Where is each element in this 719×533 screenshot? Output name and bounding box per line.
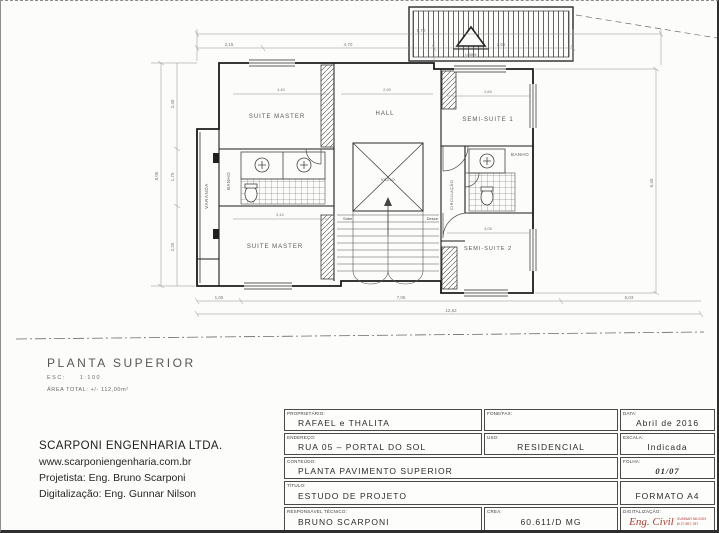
svg-text:2,40: 2,40 xyxy=(170,99,175,108)
titleblock-phone-cell: FONE/FAX: xyxy=(484,409,618,431)
dimension-lines xyxy=(151,29,703,317)
svg-text:2,60: 2,60 xyxy=(484,89,493,94)
void-label: VAZIO xyxy=(381,177,395,182)
crea-value: 60.611/D MG xyxy=(485,508,617,530)
roof-slope-label: i=30% xyxy=(465,52,477,57)
scale-value: Indicada xyxy=(621,434,714,454)
content-value: PLANTA PAVIMENTO SUPERIOR xyxy=(285,458,617,478)
svg-text:1,05: 1,05 xyxy=(215,295,224,300)
owner-value: RAFAEL e THALITA xyxy=(285,410,481,430)
room-label-suite-master-top: SUITE MASTER xyxy=(249,114,305,120)
room-label-semi-suite-1: SEMI-SUITE 1 xyxy=(462,117,513,123)
company-digitization: Digitalização: Eng. Gunnar Nilson xyxy=(39,487,223,503)
staircase: Sobe Desce VAZIO xyxy=(337,143,439,284)
svg-text:3,05: 3,05 xyxy=(484,226,493,231)
svg-text:12,62: 12,62 xyxy=(445,308,457,313)
plan-scale-value: 1:100 xyxy=(80,375,101,381)
titleblock-digitization-cell: DIGITALIZAÇÃO: Eng. Civil GUNNAR NILSON … xyxy=(620,507,715,531)
plan-title: PLANTA SUPERIOR xyxy=(47,356,196,370)
wall-columns xyxy=(213,153,219,239)
room-label-circulacao: CIRCULAÇÃO xyxy=(449,180,454,210)
titleblock-title-cell: TÍTULO: ESTUDO DE PROJETO xyxy=(284,481,618,505)
svg-text:8,70: 8,70 xyxy=(417,28,426,33)
titleblock-owner-cell: PROPRIETÁRIO: RAFAEL e THALITA xyxy=(284,409,482,431)
titleblock-responsible-cell: RESPONSÁVEL TÉCNICO: BRUNO SCARPONI xyxy=(284,507,482,531)
address-value: RUA 05 – PORTAL DO SOL xyxy=(285,434,481,454)
plan-scale: ESC:1:100 xyxy=(47,375,196,381)
company-name: SCARPONI ENGENHARIA LTDA. xyxy=(39,438,223,455)
use-value: RESIDENCIAL xyxy=(485,434,617,454)
svg-text:7,05: 7,05 xyxy=(397,295,406,300)
stair-down-label: Desce xyxy=(427,216,439,221)
company-website: www.scarponiengenharia.com.br xyxy=(39,455,223,471)
svg-text:2,15: 2,15 xyxy=(225,42,234,47)
phone-value xyxy=(485,410,617,430)
dimension-labels: 8,70 2,15 4,70 2,65 8,05 2,40 1,70 2,25 … xyxy=(154,28,654,313)
titleblock-format-cell: FORMATO A4 xyxy=(620,481,715,505)
room-label-banho-left: BANHO xyxy=(226,172,231,190)
titleblock-sheet-cell: FOLHA: 01/07 xyxy=(620,457,715,479)
doc-title-value: ESTUDO DE PROJETO xyxy=(285,482,617,504)
svg-text:4,70: 4,70 xyxy=(344,42,353,47)
room-label-varanda: VARANDA xyxy=(204,183,209,209)
titleblock-address-cell: ENDEREÇO: RUA 05 – PORTAL DO SOL xyxy=(284,433,482,455)
svg-text:1,70: 1,70 xyxy=(170,172,175,181)
titleblock-use-cell: USO: RESIDENCIAL xyxy=(484,433,618,455)
svg-text:3,10: 3,10 xyxy=(276,212,285,217)
titleblock-date-cell: DATA: Abril de 2016 xyxy=(620,409,715,431)
room-label-semi-suite-2: SEMI-SUITE 2 xyxy=(464,246,512,252)
sheet-value: 01/07 xyxy=(621,458,714,478)
room-label-suite-master-bottom: SUITE MASTER xyxy=(247,244,303,250)
bathroom-left-fixtures xyxy=(241,152,325,204)
format-value: FORMATO A4 xyxy=(621,482,714,504)
plan-caption: PLANTA SUPERIOR ESC:1:100 ÁREA TOTAL: +/… xyxy=(47,356,196,393)
titleblock-content-cell: CONTEÚDO: PLANTA PAVIMENTO SUPERIOR xyxy=(284,457,618,479)
stamp-line-2: M 27.897-787 xyxy=(677,522,706,527)
company-block: SCARPONI ENGENHARIA LTDA. www.scarponien… xyxy=(39,438,223,503)
svg-text:6,40: 6,40 xyxy=(649,178,654,187)
svg-text:2,90: 2,90 xyxy=(383,87,392,92)
date-value: Abril de 2016 xyxy=(621,410,714,430)
svg-text:5,03: 5,03 xyxy=(625,295,634,300)
company-designer: Projetista: Eng. Bruno Scarponi xyxy=(39,471,223,487)
svg-text:2,65: 2,65 xyxy=(497,42,506,47)
svg-text:2,25: 2,25 xyxy=(170,242,175,251)
engineer-stamp: Eng. Civil xyxy=(629,516,674,528)
plan-area-note: ÁREA TOTAL: +/- 112,00m² xyxy=(47,387,196,393)
plan-scale-label: ESC: xyxy=(47,375,66,381)
engineer-stamp-details: GUNNAR NILSON M 27.897-787 xyxy=(677,517,706,526)
titleblock-scale-cell: ESCALA: Indicada xyxy=(620,433,715,455)
room-label-hall: HALL xyxy=(375,111,394,117)
titleblock-crea-cell: CREA: 60.611/D MG xyxy=(484,507,618,531)
responsible-value: BRUNO SCARPONI xyxy=(285,508,481,530)
title-block: PROPRIETÁRIO: RAFAEL e THALITA FONE/FAX:… xyxy=(284,409,715,531)
stair-up-label: Sobe xyxy=(343,216,353,221)
bathroom-right-fixtures xyxy=(469,149,515,211)
room-label-banho-right: BANHO xyxy=(511,152,529,157)
scanned-drawing-page: i=30% xyxy=(0,0,719,533)
svg-text:8,05: 8,05 xyxy=(154,171,159,180)
svg-text:4,40: 4,40 xyxy=(277,87,286,92)
